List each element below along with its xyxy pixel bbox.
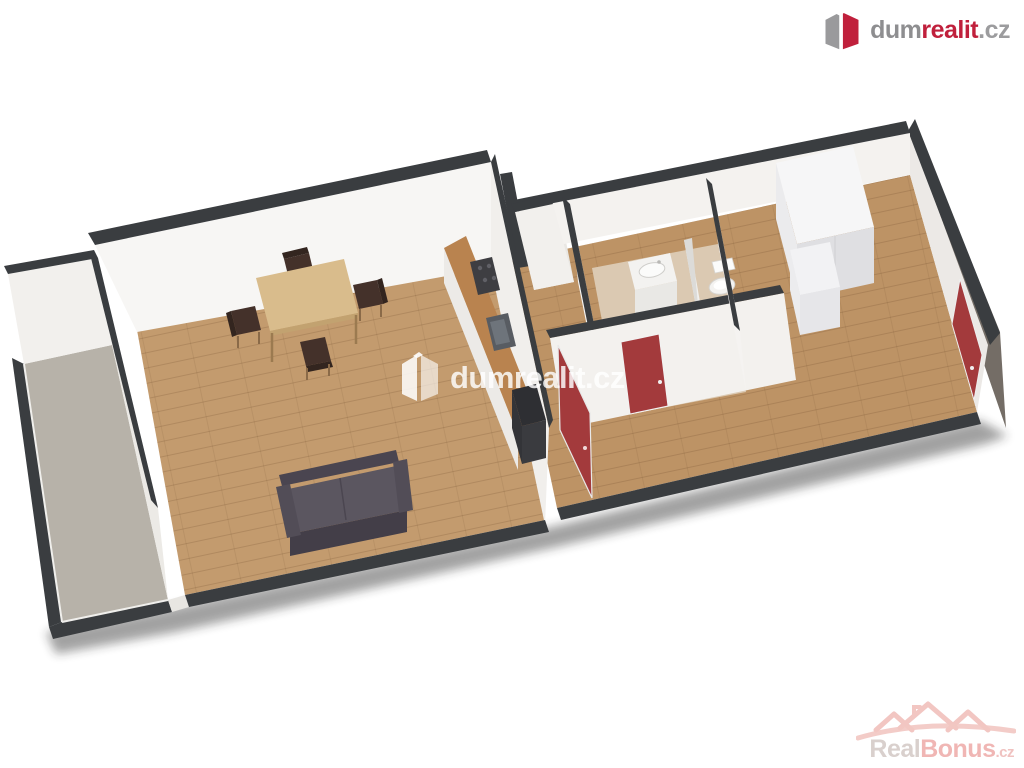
dumrealit-box-icon [823,8,861,52]
bathroom-door [621,334,668,414]
realbonus-watermark: RealBonus.cz [840,700,1018,764]
door-handle [658,380,662,384]
watermark-text: dumrealit.cz [450,362,625,393]
logo-text: dumrealit.cz [870,18,1010,43]
dumrealit-logo: dumrealit.cz [823,8,1010,52]
door-handle [583,446,587,450]
washbasin [628,253,677,314]
realbonus-text: RealBonus.cz [869,737,1014,762]
floor-plan-screenshot: dumrealit.cz dumrealit.cz RealBonus.cz [0,0,1024,768]
center-watermark: dumrealit.cz [400,348,625,406]
dumrealit-box-icon-watermark [400,348,440,406]
door-handle [970,366,974,370]
